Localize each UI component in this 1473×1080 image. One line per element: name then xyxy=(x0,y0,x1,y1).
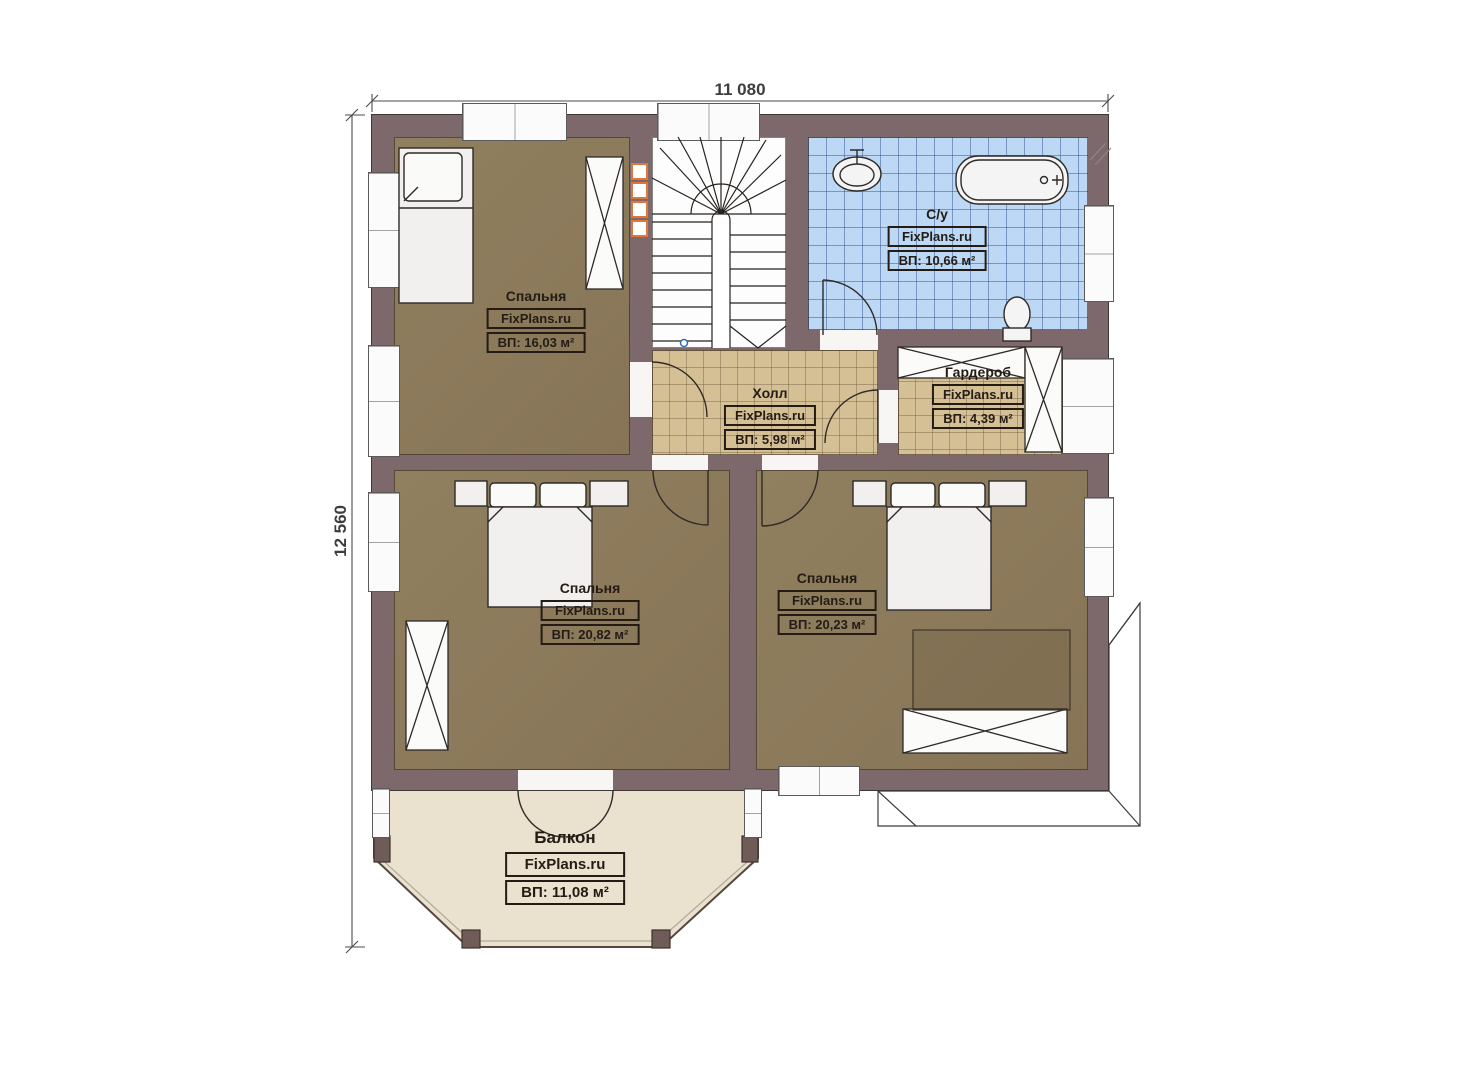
door-opening xyxy=(820,330,878,350)
watermark: FixPlans.ru xyxy=(888,226,987,247)
room-label-bedroom-bottom-left: Спальня FixPlans.ru ВП: 20,82 м² xyxy=(541,580,640,645)
room-name: Гардероб xyxy=(932,364,1024,380)
room-label-wardrobe: Гардероб FixPlans.ru ВП: 4,39 м² xyxy=(932,364,1024,429)
watermark: FixPlans.ru xyxy=(505,852,625,877)
window xyxy=(462,103,567,141)
room-name: Холл xyxy=(724,385,816,401)
window xyxy=(1062,358,1114,454)
room-label-balcony: Балкон FixPlans.ru ВП: 11,08 м² xyxy=(505,828,625,905)
window xyxy=(1084,497,1114,597)
balcony-door-opening xyxy=(518,770,613,790)
door-opening xyxy=(878,390,898,443)
room-area: ВП: 5,98 м² xyxy=(724,429,816,450)
window xyxy=(778,766,860,796)
window xyxy=(368,345,400,457)
floorplan-canvas: 11 080 12 560 Спальня FixPlans.ru ВП: 16… xyxy=(0,0,1473,1080)
room-area: ВП: 20,23 м² xyxy=(778,614,877,635)
window xyxy=(657,103,760,141)
door-opening xyxy=(762,455,818,470)
room-name: Спальня xyxy=(778,570,877,586)
balcony-side-window xyxy=(744,788,762,838)
door-opening xyxy=(630,362,652,417)
room-label-bedroom-top-left: Спальня FixPlans.ru ВП: 16,03 м² xyxy=(487,288,586,353)
window xyxy=(1084,205,1114,302)
room-name: Балкон xyxy=(505,828,625,848)
chimney-block xyxy=(631,163,648,180)
window xyxy=(368,492,400,592)
room-name: С/у xyxy=(888,206,987,222)
chimney-block xyxy=(631,220,648,237)
room-label-hall: Холл FixPlans.ru ВП: 5,98 м² xyxy=(724,385,816,450)
window xyxy=(368,172,400,288)
room-area: ВП: 4,39 м² xyxy=(932,408,1024,429)
dimension-left-label: 12 560 xyxy=(331,505,351,557)
room-name: Спальня xyxy=(541,580,640,596)
room-area: ВП: 16,03 м² xyxy=(487,332,586,353)
room-label-bathroom: С/у FixPlans.ru ВП: 10,66 м² xyxy=(888,206,987,271)
door-opening xyxy=(652,455,708,470)
chimney-block xyxy=(631,182,648,199)
room-area: ВП: 20,82 м² xyxy=(541,624,640,645)
room-name: Спальня xyxy=(487,288,586,304)
watermark: FixPlans.ru xyxy=(932,384,1024,405)
stairwell-floor xyxy=(652,137,786,348)
room-area: ВП: 11,08 м² xyxy=(505,880,625,905)
chimney-block xyxy=(631,201,648,218)
watermark: FixPlans.ru xyxy=(541,600,640,621)
watermark: FixPlans.ru xyxy=(778,590,877,611)
balcony-side-window xyxy=(372,788,390,838)
room-label-bedroom-bottom-right: Спальня FixPlans.ru ВП: 20,23 м² xyxy=(778,570,877,635)
watermark: FixPlans.ru xyxy=(487,308,586,329)
dimension-top-label: 11 080 xyxy=(714,80,765,100)
room-area: ВП: 10,66 м² xyxy=(888,250,987,271)
watermark: FixPlans.ru xyxy=(724,405,816,426)
